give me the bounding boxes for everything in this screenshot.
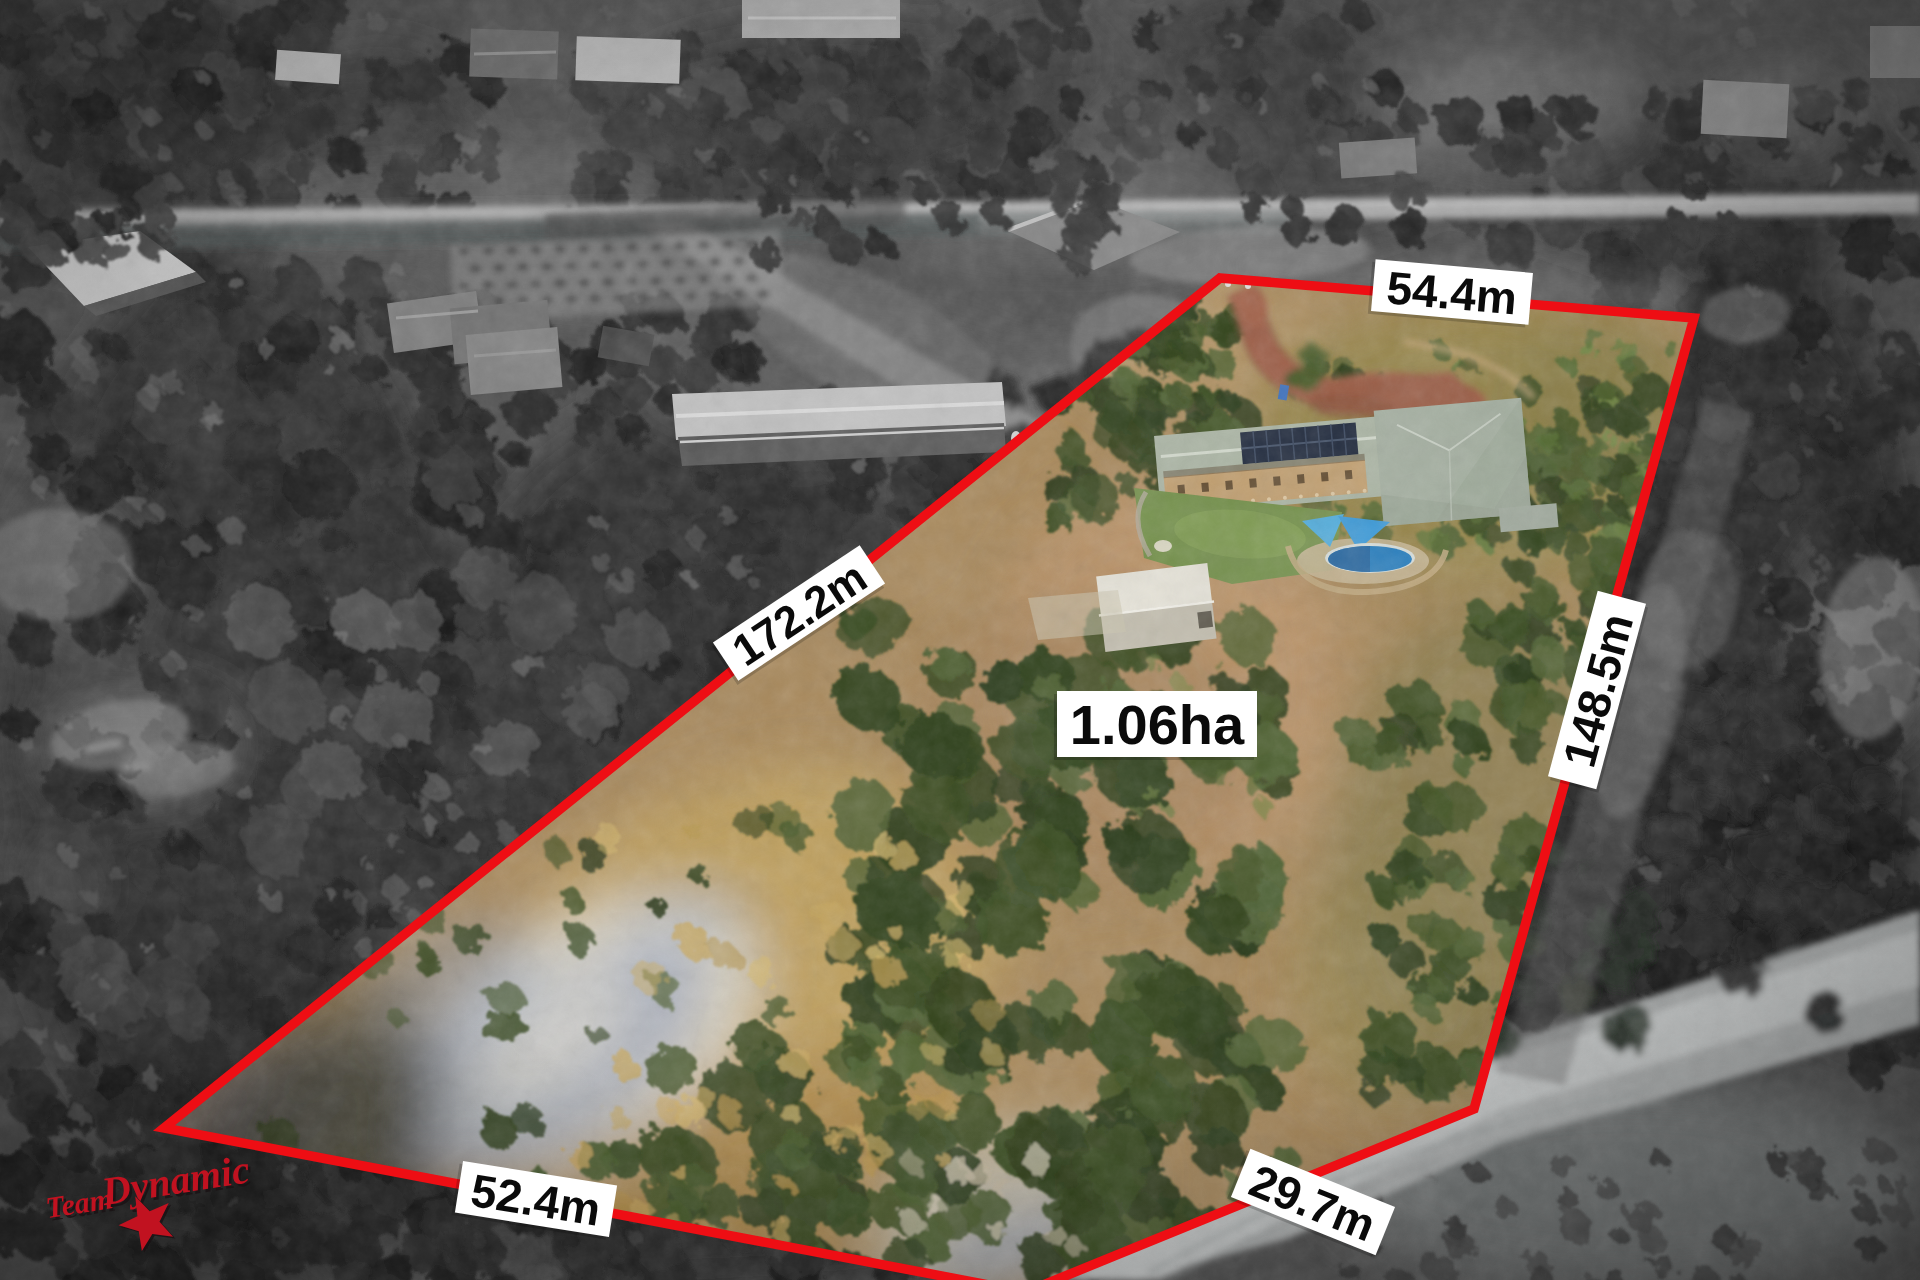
svg-text:1.06ha: 1.06ha (1070, 693, 1245, 756)
